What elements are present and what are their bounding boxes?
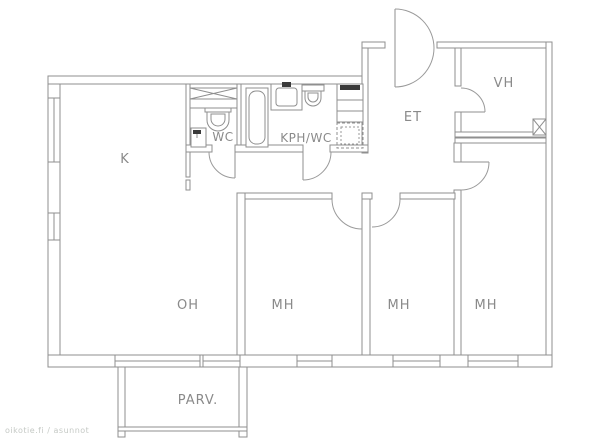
wall-kitchen-stub xyxy=(186,180,190,190)
wall-hall-2 xyxy=(362,193,372,199)
wc-counter xyxy=(190,99,237,108)
wall-bath-bottom-2 xyxy=(235,145,303,152)
bath-cabinet-icon xyxy=(337,84,363,122)
wall-wc-bath xyxy=(237,84,241,152)
wc-sink-icon xyxy=(191,128,206,147)
shaft-box-icon xyxy=(533,119,546,135)
vh-door xyxy=(461,88,485,112)
entry-door xyxy=(395,9,434,87)
wall-hall-1 xyxy=(237,193,332,199)
window-bottom-oh-balcony xyxy=(115,355,200,367)
washbasin-icon xyxy=(271,82,302,110)
mh2-door xyxy=(372,199,400,227)
watermark-text: oikotie.fi / asunnot xyxy=(5,426,89,435)
window-bottom-mh1 xyxy=(297,355,332,367)
window-left-oh xyxy=(48,213,60,240)
room-label-vh: VH xyxy=(494,76,515,91)
wc-toilet-icon xyxy=(205,108,231,131)
wall-top-upper-left xyxy=(362,42,385,48)
wall-mh3-left-lower xyxy=(454,190,461,355)
bathtub-icon xyxy=(246,88,268,147)
room-label-wc: WC xyxy=(212,130,233,144)
wall-right xyxy=(546,42,552,367)
mh1-door xyxy=(332,199,362,229)
wall-kitchen-wc xyxy=(186,84,190,177)
room-label-et: ET xyxy=(404,110,422,125)
wall-mh3-top xyxy=(455,138,546,143)
wall-top-upper-right xyxy=(437,42,552,48)
floor-plan-page: K WC KPH/WC ET VH OH MH MH MH PARV. oiko… xyxy=(0,0,600,447)
window-bottom-mh3 xyxy=(468,355,518,367)
room-label-mh2: MH xyxy=(388,298,411,313)
room-label-parv: PARV. xyxy=(178,393,219,408)
wall-mh1-mh2 xyxy=(362,199,370,355)
room-label-k: K xyxy=(120,152,130,167)
room-label-mh1: MH xyxy=(272,298,295,313)
wall-vh-left-upper xyxy=(455,48,461,86)
kph-door xyxy=(303,152,331,180)
wall-oh-mh1 xyxy=(237,193,245,355)
wall-hall-3 xyxy=(400,193,455,199)
floor-plan-drawing: K WC KPH/WC ET VH OH MH MH MH PARV. xyxy=(0,0,600,447)
room-label-kph-wc: KPH/WC xyxy=(280,131,331,145)
wall-vh-bottom xyxy=(455,132,546,137)
window-left-kitchen xyxy=(48,98,60,162)
vent-hatch xyxy=(190,88,237,99)
wall-top-main xyxy=(48,76,368,84)
room-label-mh3: MH xyxy=(475,298,498,313)
wc-door xyxy=(209,152,235,178)
washing-machine-icon xyxy=(337,123,363,148)
room-label-oh: OH xyxy=(177,298,199,313)
mh3-door xyxy=(461,162,489,190)
bath-toilet-icon xyxy=(302,85,324,106)
window-bottom-mh2 xyxy=(393,355,440,367)
window-bottom-oh xyxy=(203,355,240,367)
balcony-railing xyxy=(118,427,247,431)
wall-mh3-left-upper xyxy=(454,143,461,162)
